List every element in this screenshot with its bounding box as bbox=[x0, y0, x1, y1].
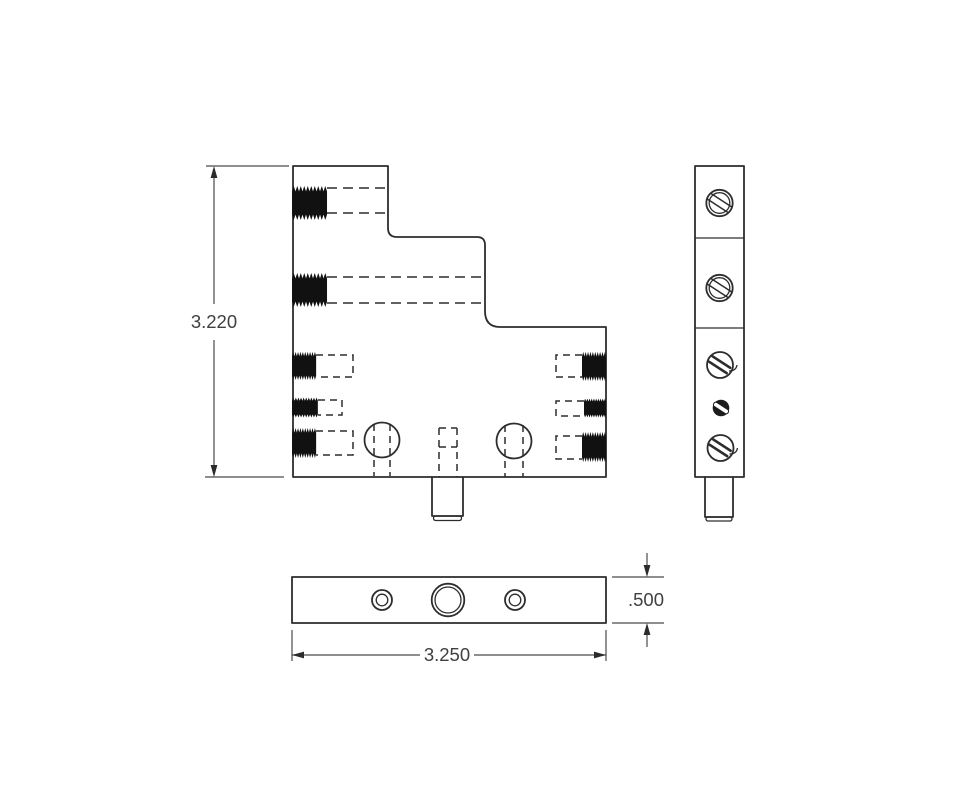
counterbore-hole-left bbox=[365, 423, 400, 477]
thread-insert-top-left-2 bbox=[292, 273, 327, 307]
dimension-width-label: 3.250 bbox=[424, 644, 470, 665]
arrowhead-up bbox=[644, 623, 651, 635]
small-set-screw bbox=[713, 400, 730, 417]
set-screw-2 bbox=[708, 435, 738, 461]
bottom-view bbox=[292, 577, 606, 623]
thread-insert-left-5 bbox=[292, 428, 316, 458]
thread-insert-right-1 bbox=[582, 352, 606, 381]
counterbore-hole-right bbox=[497, 424, 532, 478]
engineering-drawing: 3.220 .500 3.250 bbox=[0, 0, 960, 802]
dimension-thickness-label: .500 bbox=[628, 589, 664, 610]
side-outline bbox=[695, 166, 744, 477]
thread-insert-right-2 bbox=[584, 399, 606, 418]
bottom-hole-right bbox=[505, 590, 525, 610]
hidden-hole-brackets bbox=[316, 355, 584, 459]
side-bottom-stud bbox=[705, 477, 733, 521]
front-outline bbox=[293, 166, 606, 477]
thread-insert-left-3 bbox=[292, 352, 316, 380]
bottom-hole-center bbox=[432, 584, 465, 617]
arrowhead-right bbox=[594, 652, 606, 659]
side-joint-lines bbox=[695, 238, 744, 328]
bottom-hole-left bbox=[372, 590, 392, 610]
arrowhead-up bbox=[211, 166, 218, 178]
dimension-height-label: 3.220 bbox=[191, 311, 237, 332]
thread-insert-left-4 bbox=[292, 398, 318, 418]
dimension-height: 3.220 bbox=[191, 166, 289, 477]
hidden-stud-outline bbox=[439, 428, 457, 477]
arrowhead-down bbox=[644, 565, 651, 577]
screw-head-2 bbox=[706, 275, 732, 301]
arrowhead-left bbox=[292, 652, 304, 659]
dimension-width: 3.250 bbox=[292, 630, 606, 665]
side-view bbox=[695, 166, 744, 521]
set-screw-1 bbox=[707, 352, 737, 378]
thread-insert-right-3 bbox=[582, 432, 606, 462]
thread-insert-top-left-1 bbox=[292, 186, 327, 220]
screw-head-1 bbox=[706, 190, 732, 216]
drawing-canvas: 3.220 .500 3.250 bbox=[0, 0, 960, 802]
front-view bbox=[292, 166, 606, 521]
arrowhead-down bbox=[211, 465, 218, 477]
dimension-thickness: .500 bbox=[612, 553, 664, 647]
front-bottom-stud bbox=[432, 477, 463, 521]
hidden-hole-lines-upper bbox=[327, 188, 485, 303]
